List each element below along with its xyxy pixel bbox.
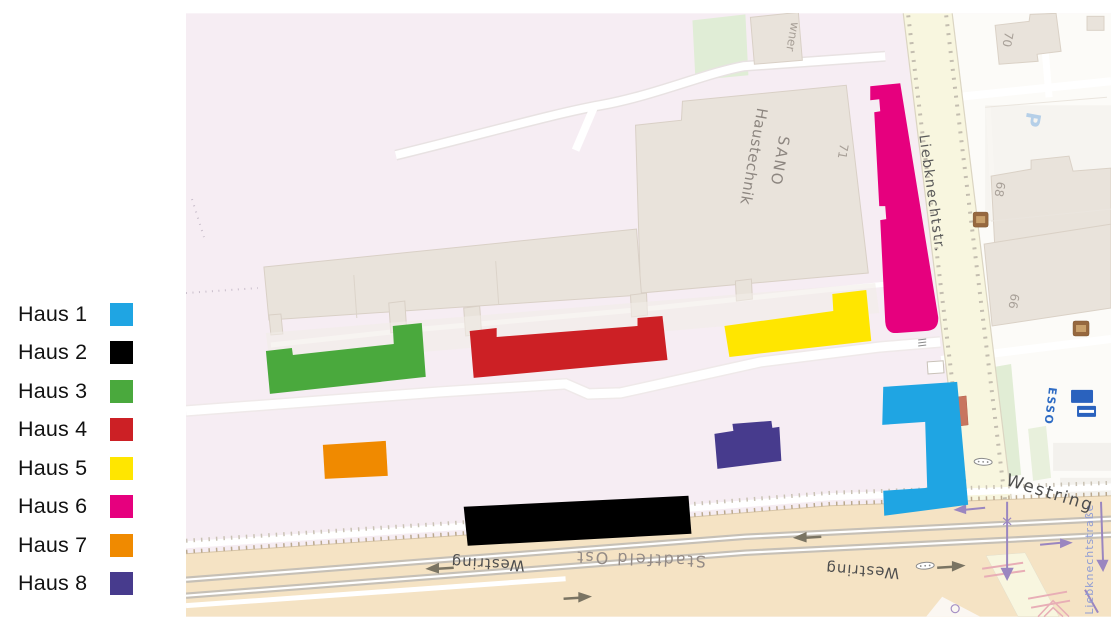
shelter-outline (927, 361, 944, 374)
legend-swatch-haus-2 (110, 341, 133, 364)
street-label-liebknechtstrasse: Liebknechtstraße (1083, 504, 1096, 615)
parcel (1053, 443, 1111, 471)
legend-swatch-haus-5 (110, 457, 133, 480)
housenumber-68: 68 (992, 181, 1008, 198)
legend-swatch-haus-7 (110, 534, 133, 557)
legend-item-haus-1: Haus 1 (18, 302, 133, 327)
housenumber-71: 71 (835, 143, 851, 160)
info-marker-icon (973, 212, 988, 227)
legend-label: Haus 6 (18, 494, 110, 519)
legend-swatch-haus-4 (110, 418, 133, 441)
legend-swatch-haus-1 (110, 303, 133, 326)
legend-label: Haus 1 (18, 302, 110, 327)
map-canvas: Liebknechtstr. Liebknechtstraße Westring… (186, 13, 1111, 617)
housenumber-66: 66 (1006, 293, 1022, 310)
legend-item-haus-3: Haus 3 (18, 379, 133, 404)
map-figure-page: { "houses": [ {"id": "haus-1", "label": … (0, 0, 1111, 628)
legend-label: Haus 2 (18, 340, 110, 365)
legend-item-haus-5: Haus 5 (18, 456, 133, 481)
legend-label: Haus 8 (18, 571, 110, 596)
legend-item-haus-6: Haus 6 (18, 494, 133, 519)
legend-item-haus-2: Haus 2 (18, 340, 133, 365)
building-haus-7[interactable] (323, 441, 388, 479)
legend-swatch-haus-6 (110, 495, 133, 518)
legend-label: Haus 7 (18, 533, 110, 558)
legend-swatch-haus-3 (110, 380, 133, 403)
legend: Haus 1 Haus 2 Haus 3 Haus 4 Haus 5 Haus … (14, 0, 174, 628)
info-marker-icon (1073, 321, 1089, 336)
housenumber-70: 70 (1000, 31, 1016, 48)
legend-item-haus-4: Haus 4 (18, 417, 133, 442)
legend-label: Haus 5 (18, 456, 110, 481)
street-label-westring-1: Westring (450, 553, 525, 575)
legend-item-haus-8: Haus 8 (18, 571, 133, 596)
legend-label: Haus 3 (18, 379, 110, 404)
osm-map: Liebknechtstr. Liebknechtstraße Westring… (186, 13, 1111, 617)
legend-swatch-haus-8 (110, 572, 133, 595)
legend-label: Haus 4 (18, 417, 110, 442)
legend-item-haus-7: Haus 7 (18, 533, 133, 558)
